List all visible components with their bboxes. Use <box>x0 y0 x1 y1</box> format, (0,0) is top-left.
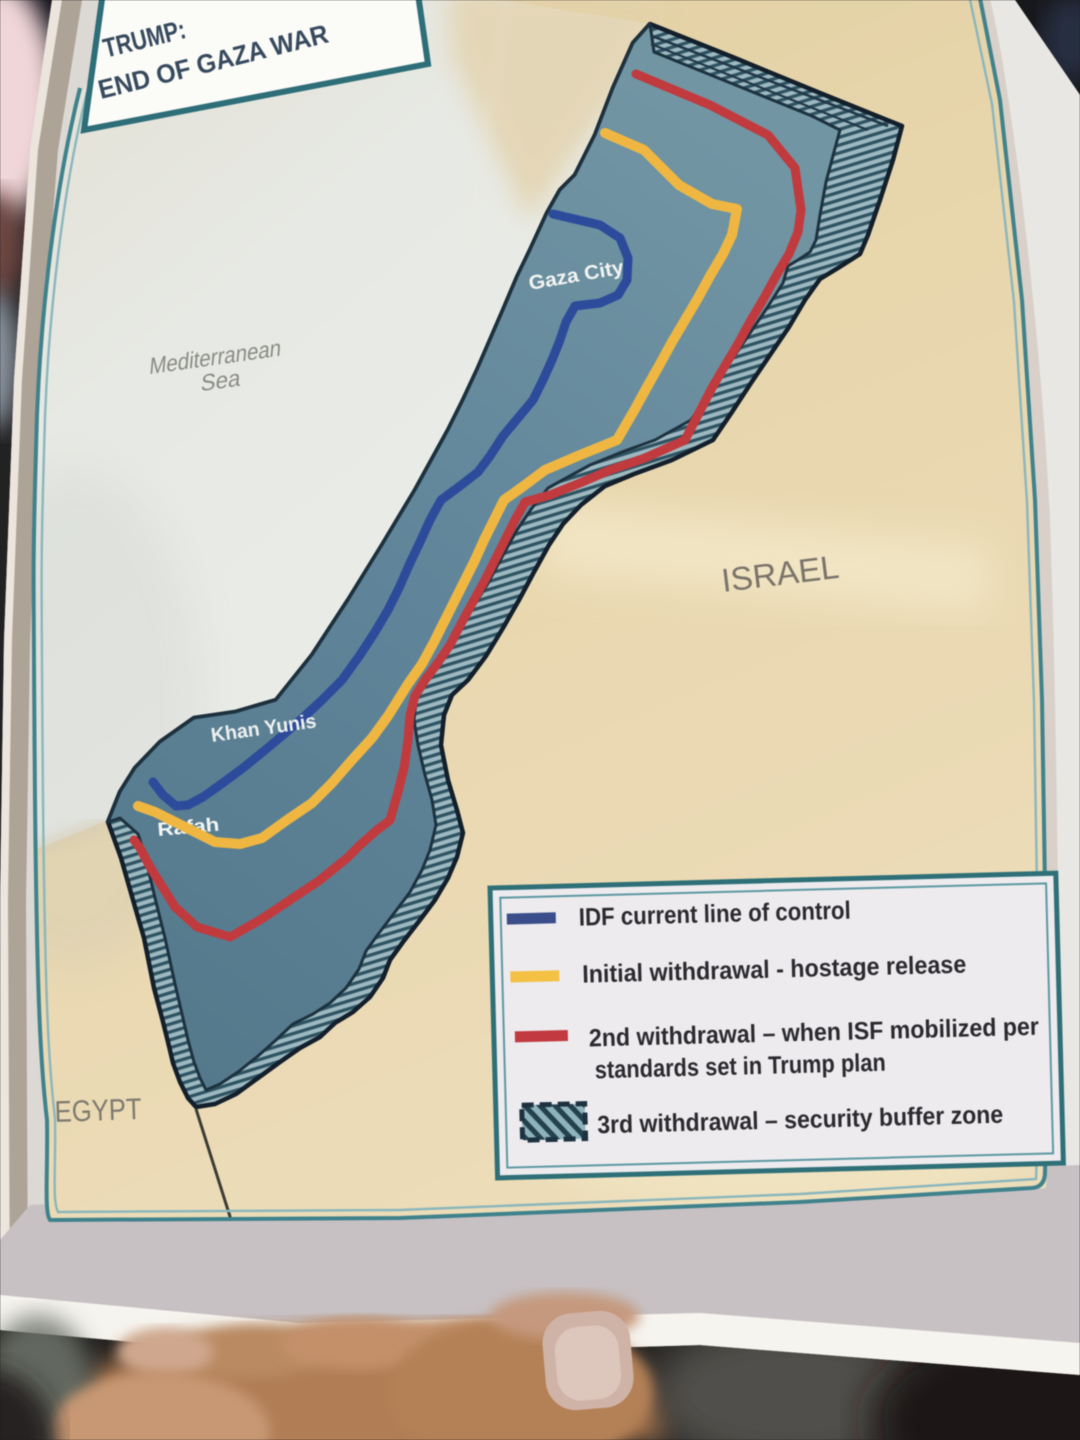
svg-text:EGYPT: EGYPT <box>54 1093 142 1129</box>
